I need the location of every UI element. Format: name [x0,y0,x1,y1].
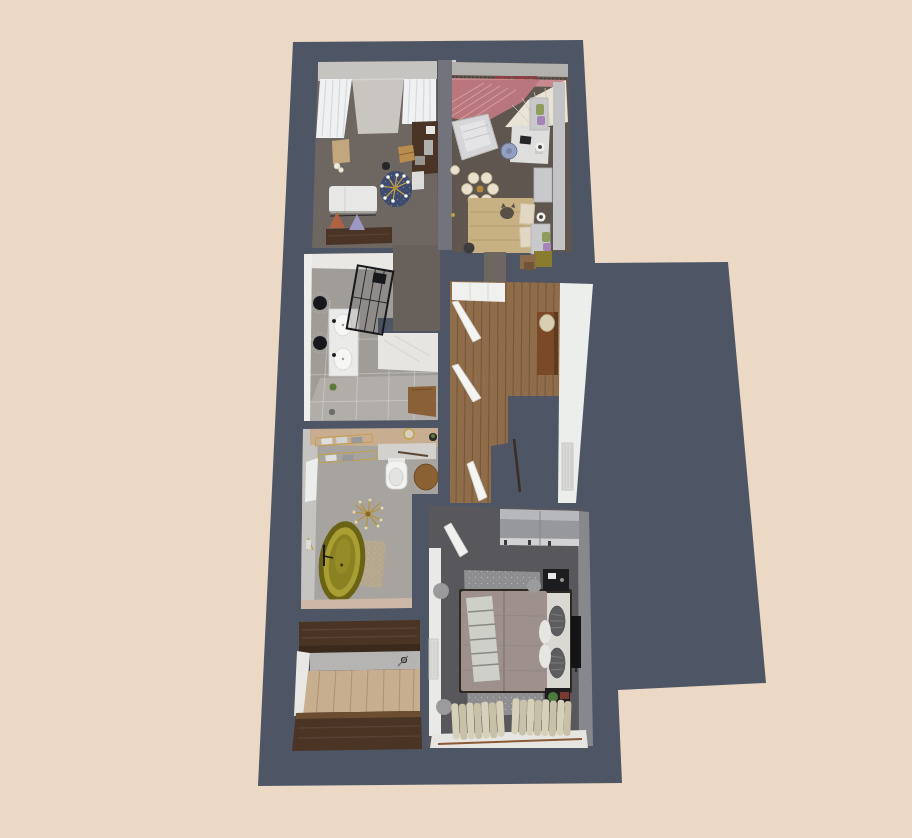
closet-doors[interactable] [452,282,505,302]
desk-monitor[interactable] [424,140,433,155]
bedroom-master [428,506,593,748]
bed[interactable] [464,198,535,254]
divider-wall-top [438,60,452,250]
desk[interactable] [510,125,550,164]
wall-shelves[interactable] [530,82,565,254]
side-table[interactable] [412,171,424,190]
plant[interactable] [330,384,337,391]
back-wall [318,61,437,81]
nightstand-top[interactable] [543,569,569,591]
floor-lamp[interactable] [332,139,350,164]
office-chair[interactable] [501,143,517,159]
window-light [352,78,404,134]
wooden-chair[interactable] [398,145,415,163]
floor-plan-canvas [0,0,912,838]
round-stool[interactable] [414,464,438,490]
marble-wall-top [306,253,393,270]
toilet[interactable] [386,458,407,489]
double-bed[interactable] [459,589,572,693]
walk-in-closet [292,620,422,751]
sliding-wardrobe[interactable] [500,509,579,546]
radiator[interactable] [429,639,438,679]
marble-wall-low [378,333,438,372]
wall-mirror[interactable] [404,429,414,439]
tv[interactable] [571,616,581,672]
dresser[interactable] [534,251,552,267]
sofa-chaise[interactable] [329,186,377,216]
back-wall [452,62,568,77]
console-table[interactable] [537,312,558,375]
wardrobe-bottom[interactable] [292,711,422,751]
bedroom-small [451,62,573,282]
plant [431,434,435,438]
closet-floor [303,669,420,716]
vase[interactable] [540,315,555,332]
wooden-door[interactable] [408,386,436,417]
passage-floor [393,245,440,331]
boxes[interactable] [520,255,536,270]
pendant-lamp[interactable] [451,166,460,175]
wardrobe-top[interactable] [299,620,420,653]
radiator[interactable] [562,443,573,490]
star-charm[interactable] [451,213,455,217]
doorway-floor [484,252,506,282]
window-light [305,458,318,502]
floor-drain [329,409,335,415]
stool[interactable] [382,162,390,170]
desk[interactable] [412,121,438,175]
